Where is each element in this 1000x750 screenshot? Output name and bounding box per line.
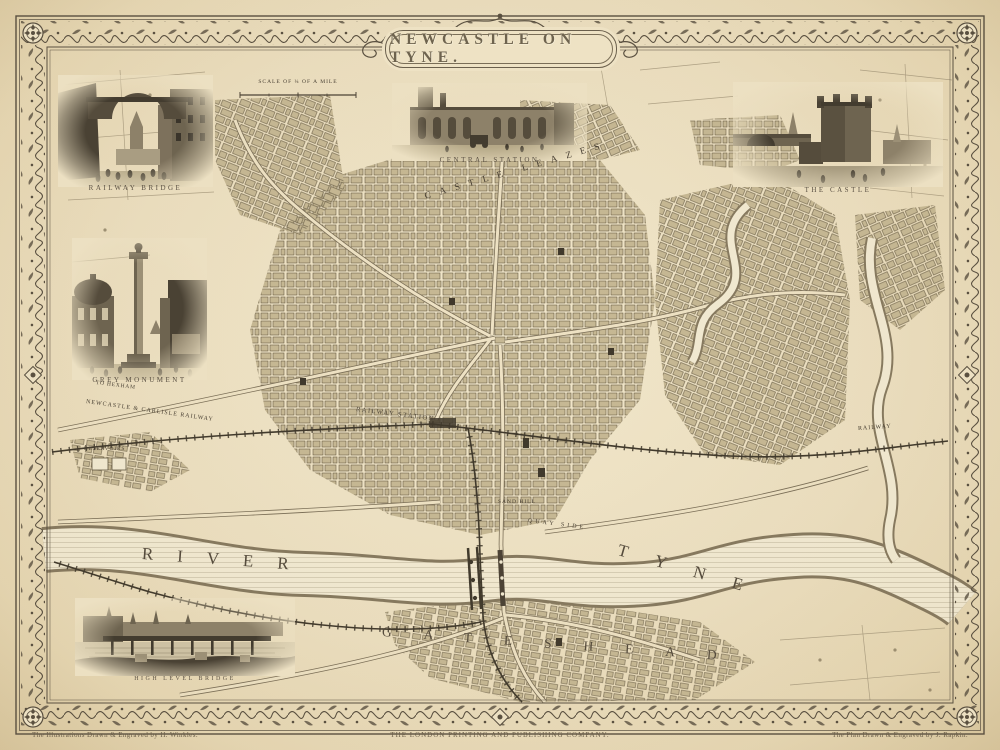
central-station-engraving bbox=[392, 83, 587, 161]
antique-map-page: NEWCASTLE ON TYNE. RAILWAY BRIDGE bbox=[0, 0, 1000, 750]
vignette-caption: RAILWAY BRIDGE bbox=[58, 184, 213, 192]
vignette-grey-monument bbox=[72, 238, 207, 380]
railway-bridge-engraving bbox=[58, 75, 213, 187]
grey-monument-engraving bbox=[72, 238, 207, 380]
vignette-railway-bridge bbox=[58, 75, 213, 187]
vignette-central-station bbox=[392, 83, 587, 161]
imprint-engraver: The Plan Drawn & Engraved by J. Rapkin. bbox=[832, 731, 968, 739]
label-sand-hill: SAND HILL bbox=[498, 499, 536, 505]
vignette-caption: HIGH LEVEL BRIDGE bbox=[75, 676, 295, 682]
map-title: NEWCASTLE ON TYNE. bbox=[390, 31, 612, 67]
vignette-the-castle bbox=[733, 82, 943, 187]
the-castle-engraving bbox=[733, 82, 943, 187]
high-level-bridge-engraving bbox=[75, 598, 295, 676]
label-reservoirs: RESERVOIRS bbox=[84, 446, 125, 452]
scale-label: SCALE OF ¼ OF A MILE bbox=[238, 79, 358, 85]
title-cartouche-inner: NEWCASTLE ON TYNE. bbox=[389, 34, 613, 64]
vignette-high-level-bridge bbox=[75, 598, 295, 676]
vignette-caption: THE CASTLE bbox=[733, 186, 943, 194]
vignette-caption: GREY MONUMENT bbox=[72, 376, 207, 384]
title-cartouche: NEWCASTLE ON TYNE. bbox=[385, 30, 617, 68]
